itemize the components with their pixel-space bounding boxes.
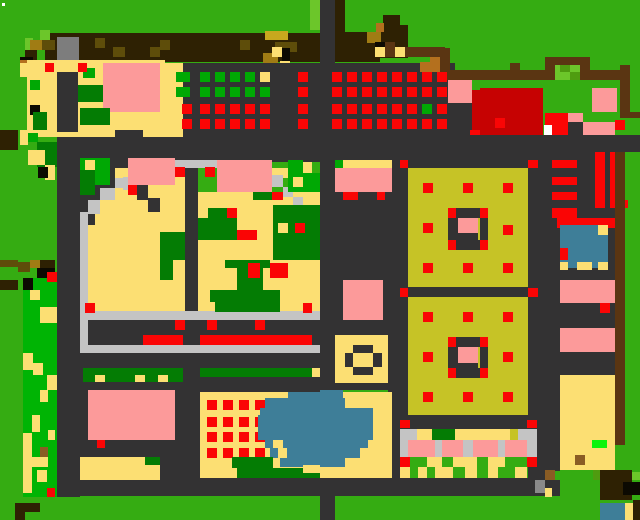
pixel-town-map[interactable] — [0, 0, 640, 520]
game-viewport — [0, 0, 640, 520]
